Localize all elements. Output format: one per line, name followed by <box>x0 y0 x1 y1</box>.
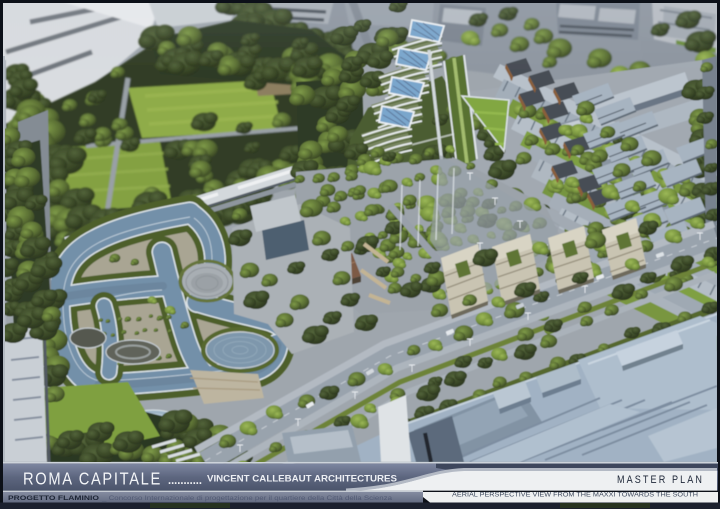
svg-text:MASTER PLAN: MASTER PLAN <box>617 474 704 486</box>
svg-text:_ Concorso Internazionale di p: _ Concorso Internazionale di progettazio… <box>101 495 392 502</box>
svg-text:PROGETTO FLAMINIO: PROGETTO FLAMINIO <box>8 495 99 502</box>
svg-text:AERIAL PERSPECTIVE VIEW FROM T: AERIAL PERSPECTIVE VIEW FROM THE MAXXI T… <box>452 492 698 499</box>
svg-text:...........: ........... <box>168 473 202 487</box>
svg-text:VINCENT CALLEBAUT ARCHITECTURE: VINCENT CALLEBAUT ARCHITECTURES <box>207 474 397 484</box>
svg-text:ROMA CAPITALE: ROMA CAPITALE <box>23 469 162 489</box>
